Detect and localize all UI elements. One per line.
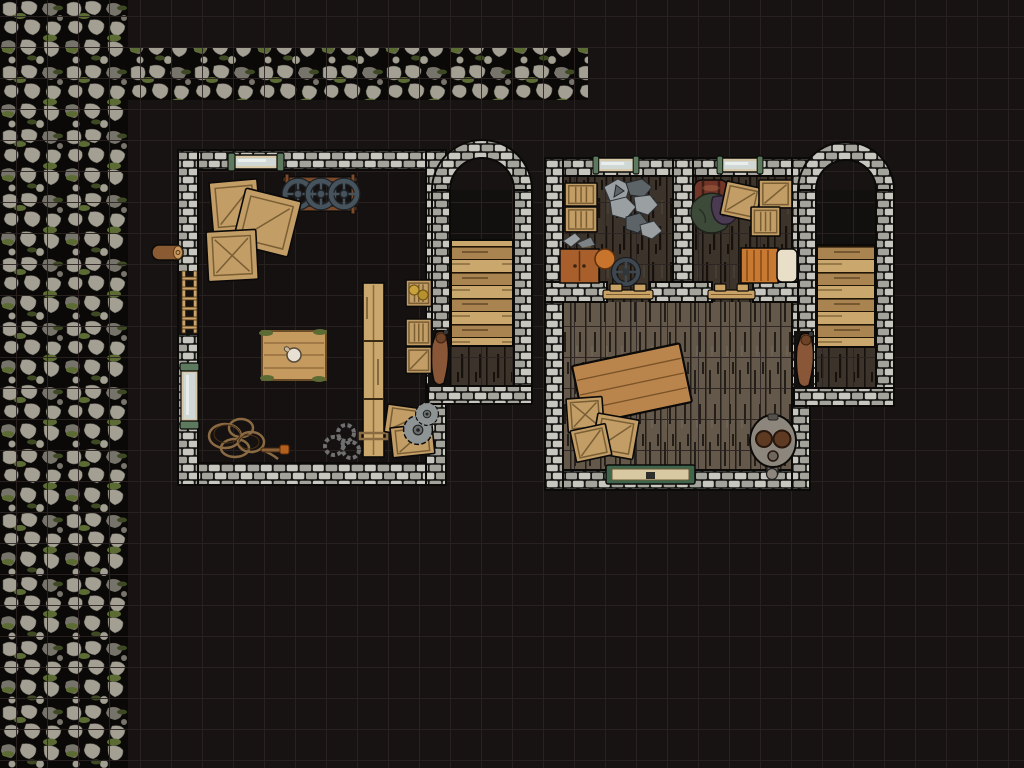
bedroll xyxy=(741,248,797,283)
supply-crate xyxy=(406,319,432,346)
window-top-storage xyxy=(228,153,284,171)
clay-pot xyxy=(595,249,615,269)
battle-map xyxy=(0,0,1024,768)
crate xyxy=(206,229,258,281)
supply-crate-bread xyxy=(406,280,432,306)
supply-crate xyxy=(406,347,432,373)
grid-overlay xyxy=(0,0,1024,768)
window-left-wall xyxy=(180,363,199,429)
crate xyxy=(751,207,780,236)
window-store-b xyxy=(717,156,763,174)
crate xyxy=(570,424,612,463)
map-canvas xyxy=(0,0,1024,768)
plank-walkway xyxy=(360,283,387,457)
crate xyxy=(759,180,792,208)
saw-crates xyxy=(384,403,438,458)
log xyxy=(152,245,183,260)
work-rug xyxy=(259,329,327,382)
crate xyxy=(565,183,597,206)
tower-stairs xyxy=(817,245,875,347)
green-door xyxy=(606,465,695,484)
room-divider-wall xyxy=(673,158,693,302)
hanging-cloak xyxy=(431,330,448,385)
crate xyxy=(565,207,597,232)
hanging-cloak xyxy=(796,332,813,387)
window-store-a xyxy=(593,156,639,174)
cabinet xyxy=(560,249,599,283)
valve-wheel xyxy=(614,260,638,284)
tower-stairs xyxy=(451,240,513,346)
